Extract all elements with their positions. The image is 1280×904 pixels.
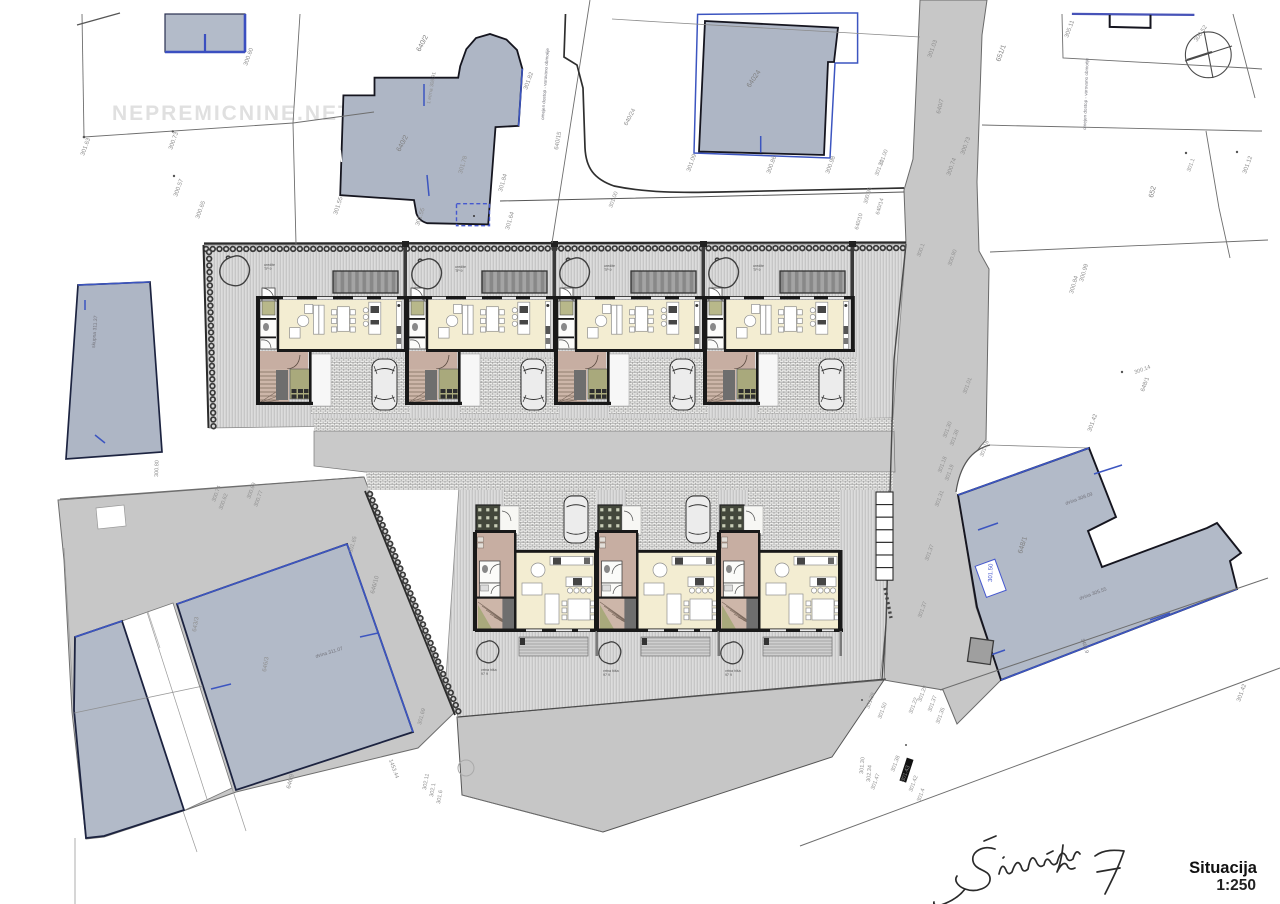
svg-text:97 9: 97 9: [725, 673, 732, 677]
svg-text:1:250: 1:250: [1216, 877, 1256, 894]
svg-text:Situacija: Situacija: [1189, 859, 1258, 877]
svg-text:TP 9: TP 9: [455, 269, 463, 273]
svg-text:300.80: 300.80: [154, 460, 161, 477]
svg-text:TP 9: TP 9: [753, 268, 761, 272]
svg-text:97 9: 97 9: [603, 673, 610, 677]
svg-text:NEPREMICNINE.NET: NEPREMICNINE.NET: [112, 102, 353, 125]
svg-text:97 9: 97 9: [481, 672, 488, 676]
svg-text:301.50: 301.50: [988, 563, 995, 582]
svg-text:TP 9: TP 9: [264, 267, 272, 271]
svg-text:TP 9: TP 9: [604, 268, 612, 272]
